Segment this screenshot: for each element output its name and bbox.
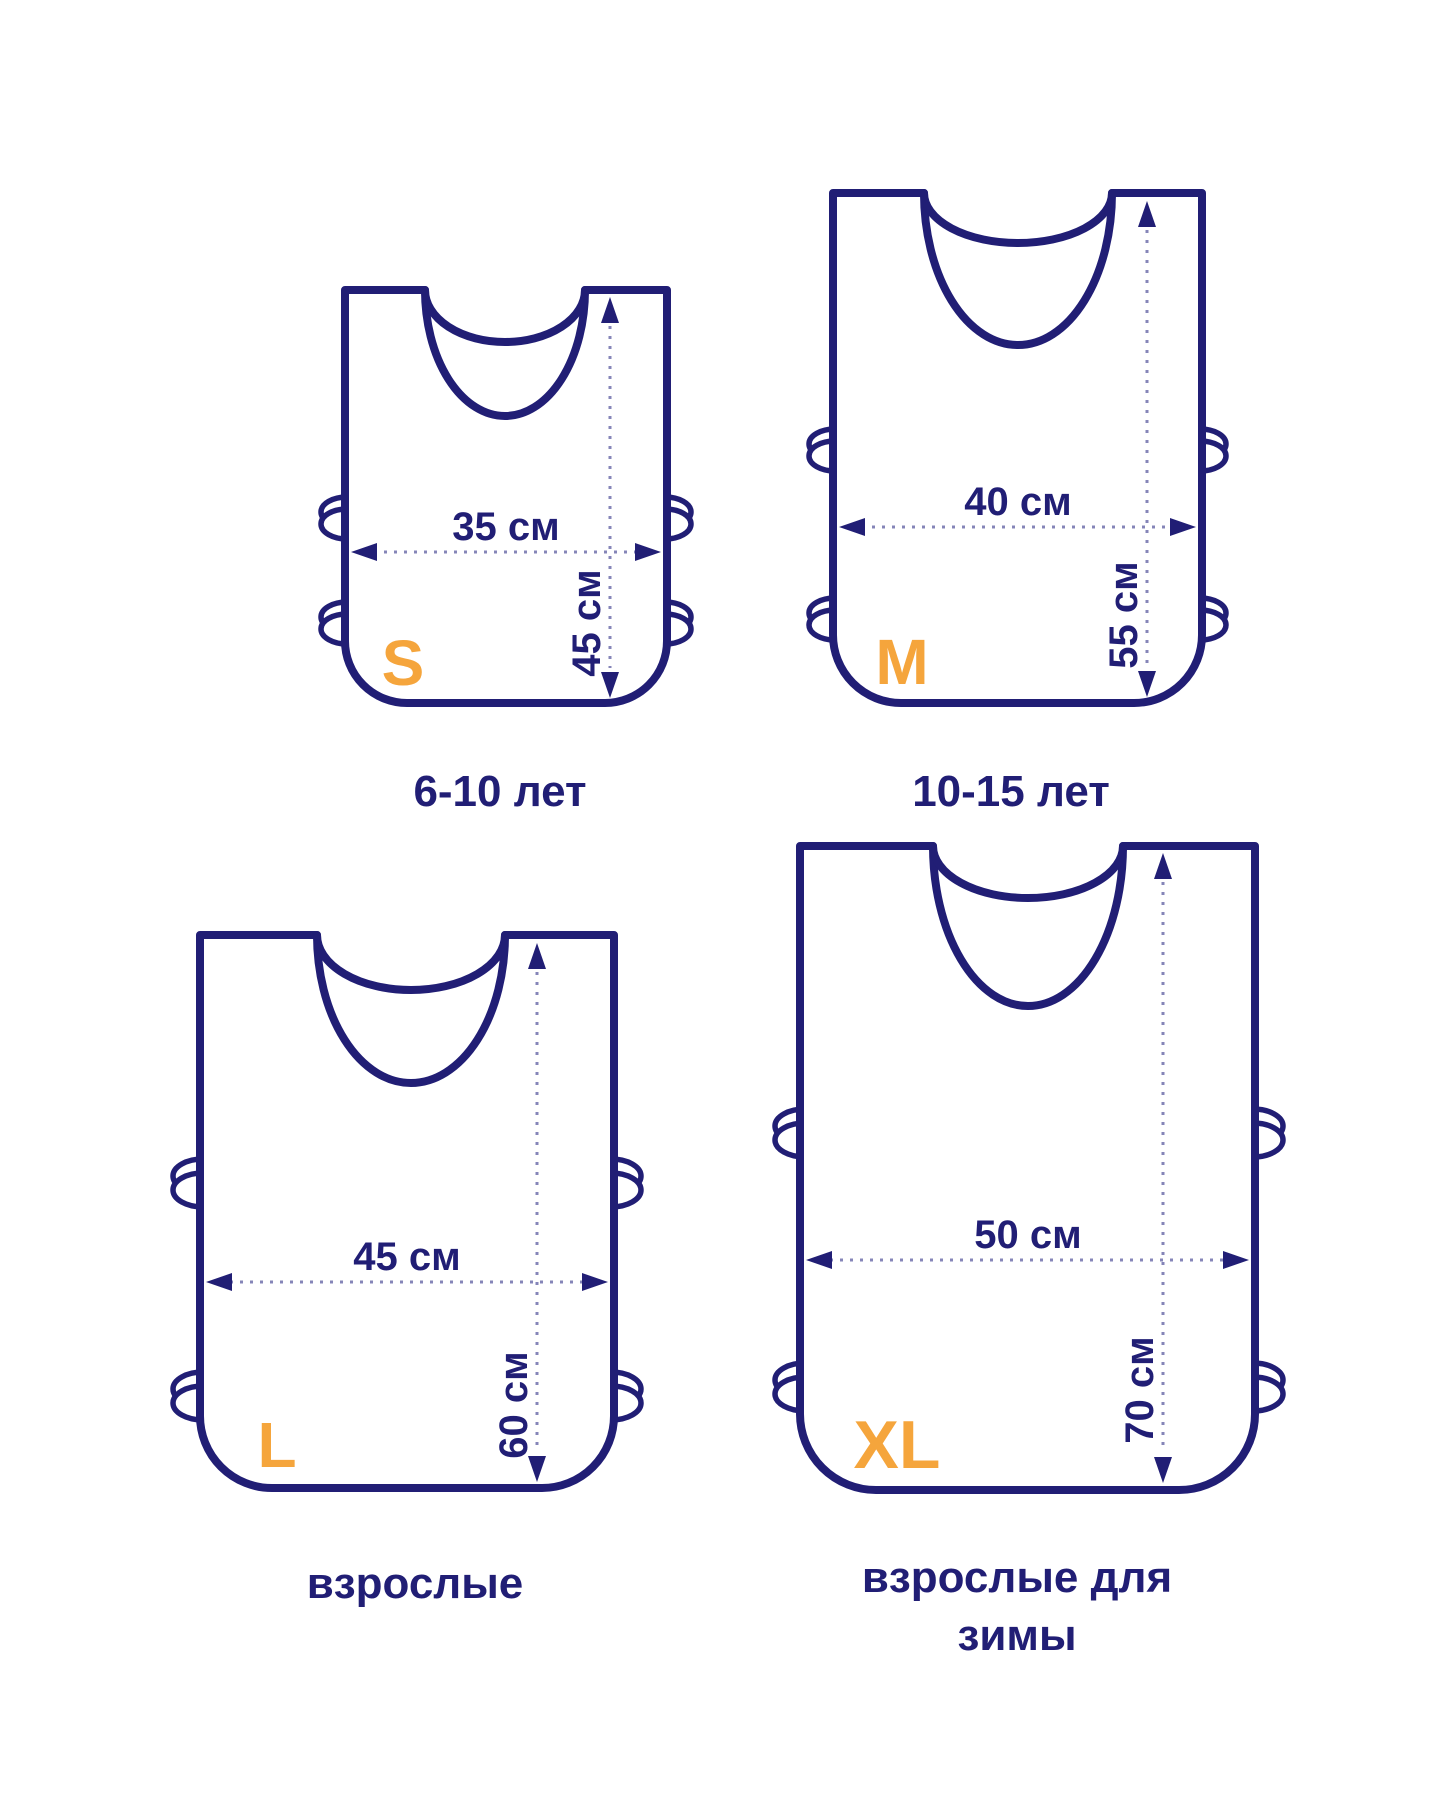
vest-l-neckline	[317, 935, 505, 990]
size-letter-s: S	[382, 627, 425, 699]
vest-s: 35 см 45 см S 6-10 лет	[321, 290, 691, 816]
size-letter-m: M	[875, 626, 928, 698]
vest-xl: 50 см 70 см XL взрослые для зимы	[775, 846, 1283, 1660]
height-dimension-label: 55 см	[1102, 561, 1146, 668]
size-letter-xl: XL	[854, 1407, 941, 1483]
size-chart-drawing: 35 см 45 см S 6-10 лет 40 см	[0, 0, 1446, 1809]
age-caption-s: 6-10 лет	[413, 767, 586, 816]
width-dimension-label: 35 см	[452, 505, 559, 549]
size-letter-l: L	[257, 1409, 296, 1481]
vest-m: 40 см 55 см M 10-15 лет	[809, 193, 1226, 816]
height-dimension-label: 45 см	[565, 569, 609, 676]
vest-xl-outline	[800, 846, 1255, 1490]
vest-l: 45 см 60 см L взрослые	[173, 935, 641, 1608]
vest-s-neckline	[425, 290, 585, 342]
age-caption-m: 10-15 лет	[912, 767, 1110, 816]
vest-size-chart: 35 см 45 см S 6-10 лет 40 см	[0, 0, 1446, 1809]
height-dimension-label: 70 см	[1118, 1336, 1162, 1443]
age-caption-xl-line1: взрослые для	[862, 1553, 1172, 1602]
height-dimension-label: 60 см	[492, 1351, 536, 1458]
width-dimension-label: 40 см	[964, 480, 1071, 524]
age-caption-xl-line2: зимы	[957, 1611, 1076, 1660]
width-dimension-label: 45 см	[353, 1235, 460, 1279]
age-caption-l: взрослые	[307, 1559, 524, 1608]
vest-xl-neckline	[933, 846, 1123, 898]
vest-m-neckline	[924, 193, 1112, 243]
vest-l-outline	[200, 935, 614, 1488]
width-dimension-label: 50 см	[974, 1213, 1081, 1257]
